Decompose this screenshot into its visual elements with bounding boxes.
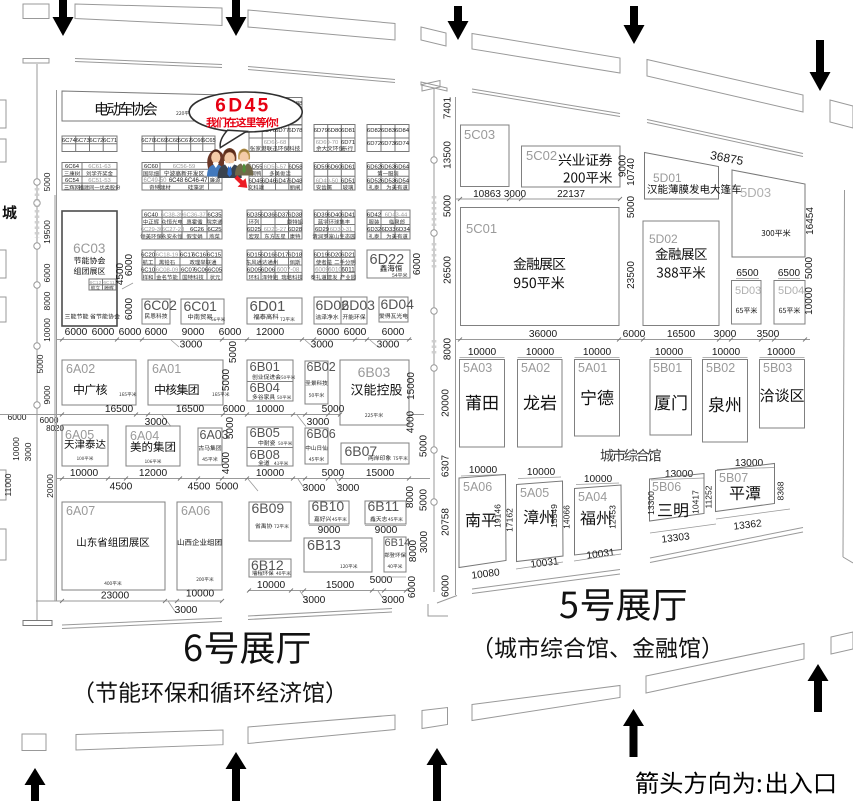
- svg-text:6D74: 6D74: [395, 141, 410, 147]
- svg-text:10000: 10000: [804, 287, 815, 315]
- svg-text:6D34: 6D34: [396, 227, 411, 233]
- svg-text:15000: 15000: [406, 372, 417, 400]
- svg-text:3000: 3000: [180, 340, 203, 351]
- svg-text:11252: 11252: [704, 485, 714, 508]
- svg-text:5000: 5000: [221, 368, 232, 391]
- svg-text:6000: 6000: [344, 327, 367, 338]
- svg-text:6D06: 6D06: [261, 268, 276, 274]
- svg-text:16500: 16500: [105, 404, 134, 415]
- svg-text:6C02: 6C02: [144, 297, 178, 313]
- svg-text:5A01: 5A01: [578, 361, 607, 375]
- svg-text:6A04: 6A04: [130, 429, 159, 443]
- svg-text:6C38-39: 6C38-39: [161, 213, 184, 219]
- svg-text:6C49-50: 6C49-50: [143, 178, 167, 184]
- svg-text:6B06: 6B06: [307, 427, 336, 441]
- svg-text:6D81: 6D81: [341, 128, 355, 134]
- svg-text:10000: 10000: [70, 468, 99, 479]
- svg-text:6D04: 6D04: [381, 296, 415, 312]
- svg-text:6000: 6000: [219, 327, 242, 338]
- svg-text:6D38: 6D38: [288, 213, 303, 219]
- svg-text:5B07: 5B07: [719, 471, 748, 485]
- svg-text:6000: 6000: [124, 253, 135, 276]
- svg-text:10000: 10000: [11, 437, 21, 461]
- svg-text:5A02: 5A02: [521, 361, 550, 375]
- svg-text:6D72: 6D72: [367, 141, 381, 147]
- svg-text:6000: 6000: [317, 327, 340, 338]
- svg-text:8000: 8000: [408, 539, 419, 562]
- svg-text:6000: 6000: [407, 575, 418, 598]
- svg-text:6500: 6500: [736, 268, 759, 279]
- svg-text:6C07: 6C07: [181, 268, 195, 274]
- svg-text:12000: 12000: [139, 468, 168, 479]
- svg-text:6D19: 6D19: [314, 253, 328, 259]
- svg-text:3000: 3000: [175, 605, 198, 616]
- svg-text:6D48: 6D48: [288, 178, 303, 184]
- svg-text:5D03: 5D03: [735, 285, 761, 297]
- svg-text:6D42: 6D42: [367, 213, 381, 219]
- svg-text:6D69-70: 6D69-70: [316, 140, 339, 146]
- svg-text:36875: 36875: [709, 148, 745, 168]
- svg-text:6D64: 6D64: [395, 165, 410, 171]
- svg-text:6D49-50: 6D49-50: [316, 178, 339, 184]
- svg-text:6D41: 6D41: [341, 213, 355, 219]
- svg-text:5D01: 5D01: [653, 171, 682, 185]
- svg-text:6B08: 6B08: [250, 447, 280, 462]
- svg-text:6C64: 6C64: [65, 164, 80, 170]
- svg-text:6D43-44: 6D43-44: [385, 213, 408, 219]
- svg-text:6C65: 6C65: [202, 138, 216, 144]
- svg-text:6D32: 6D32: [367, 227, 381, 233]
- svg-text:10000: 10000: [468, 347, 497, 358]
- svg-text:3000: 3000: [303, 595, 326, 606]
- svg-text:6D62: 6D62: [367, 165, 381, 171]
- svg-text:7401: 7401: [443, 96, 454, 119]
- svg-text:5B01: 5B01: [653, 361, 682, 375]
- svg-text:6B03: 6B03: [358, 364, 391, 380]
- svg-text:6C60: 6C60: [144, 164, 159, 170]
- svg-text:10000: 10000: [256, 404, 285, 415]
- svg-text:19146: 19146: [493, 504, 503, 528]
- svg-text:5D02: 5D02: [649, 232, 678, 246]
- svg-text:6C56-59: 6C56-59: [173, 164, 196, 170]
- svg-text:9000: 9000: [375, 525, 398, 536]
- svg-text:6D15: 6D15: [247, 253, 262, 259]
- svg-text:3000: 3000: [504, 189, 527, 200]
- svg-text:6000: 6000: [441, 574, 452, 597]
- svg-text:6D51: 6D51: [341, 178, 355, 184]
- svg-text:4000: 4000: [221, 451, 232, 474]
- svg-text:6C12: 6C12: [90, 280, 102, 286]
- svg-text:6D17: 6D17: [274, 253, 288, 259]
- svg-text:16454: 16454: [805, 207, 816, 235]
- svg-text:10000: 10000: [527, 467, 556, 478]
- svg-text:6000: 6000: [124, 297, 135, 320]
- svg-text:10863: 10863: [473, 189, 501, 200]
- svg-text:8000: 8000: [405, 485, 416, 508]
- svg-text:20000: 20000: [441, 389, 452, 417]
- svg-text:6C08-09: 6C08-09: [156, 268, 179, 274]
- svg-text:6D83: 6D83: [381, 128, 396, 134]
- svg-text:6C29-30: 6C29-30: [141, 227, 164, 233]
- svg-text:6B12: 6B12: [251, 557, 284, 573]
- svg-text:10080: 10080: [471, 567, 501, 581]
- svg-text:6C35: 6C35: [207, 213, 222, 219]
- svg-text:6D01: 6D01: [250, 298, 286, 315]
- svg-text:12453: 12453: [608, 505, 618, 529]
- svg-text:6C40: 6C40: [144, 213, 159, 219]
- svg-text:6D54: 6D54: [395, 178, 410, 184]
- svg-text:6C06: 6C06: [194, 268, 209, 274]
- svg-text:6D21: 6D21: [341, 253, 355, 259]
- svg-text:6D79: 6D79: [314, 128, 328, 134]
- svg-text:6000: 6000: [623, 329, 646, 340]
- svg-text:6D28: 6D28: [288, 227, 303, 233]
- svg-text:10417: 10417: [691, 490, 701, 514]
- svg-text:9000: 9000: [42, 385, 52, 404]
- svg-text:6D33: 6D33: [381, 227, 396, 233]
- svg-text:6B01: 6B01: [250, 359, 280, 374]
- svg-text:36000: 36000: [529, 329, 558, 340]
- svg-text:6A01: 6A01: [152, 362, 181, 376]
- svg-text:6C25: 6C25: [207, 227, 222, 233]
- svg-text:20758: 20758: [441, 508, 452, 536]
- svg-text:6D82: 6D82: [367, 128, 381, 134]
- svg-text:3000: 3000: [23, 442, 33, 461]
- svg-text:6B13: 6B13: [307, 538, 341, 554]
- svg-text:6C27-28: 6C27-28: [162, 227, 185, 233]
- svg-text:3000: 3000: [714, 329, 737, 340]
- svg-text:14066: 14066: [562, 505, 572, 529]
- svg-text:5A04: 5A04: [578, 490, 607, 504]
- svg-text:8368: 8368: [776, 481, 786, 500]
- svg-text:6000: 6000: [412, 252, 423, 275]
- svg-text:3000: 3000: [377, 340, 400, 351]
- svg-text:6D84: 6D84: [395, 128, 410, 134]
- svg-text:6D05: 6D05: [247, 268, 262, 274]
- svg-text:13300: 13300: [646, 491, 656, 515]
- svg-text:6C71: 6C71: [103, 138, 117, 144]
- svg-text:6A03: 6A03: [200, 428, 229, 442]
- svg-text:6D18: 6D18: [288, 253, 303, 259]
- svg-text:6D37: 6D37: [274, 213, 288, 219]
- svg-text:23000: 23000: [101, 591, 130, 602]
- svg-text:6D73: 6D73: [381, 141, 396, 147]
- svg-text:5000: 5000: [419, 488, 430, 511]
- svg-text:10000: 10000: [469, 465, 498, 476]
- svg-text:6D36: 6D36: [261, 213, 276, 219]
- svg-text:6D60: 6D60: [327, 165, 342, 171]
- svg-text:6D03: 6D03: [342, 297, 376, 313]
- svg-text:10000: 10000: [526, 347, 555, 358]
- svg-text:15000: 15000: [366, 468, 395, 479]
- svg-text:6D29: 6D29: [315, 227, 329, 233]
- svg-text:6000: 6000: [145, 327, 168, 338]
- svg-text:10000: 10000: [257, 580, 286, 591]
- svg-text:6B07: 6B07: [345, 443, 378, 459]
- svg-text:6500: 6500: [778, 268, 801, 279]
- svg-text:5000: 5000: [626, 195, 637, 218]
- svg-text:6D63: 6D63: [381, 165, 396, 171]
- svg-text:6D47: 6D47: [275, 178, 289, 184]
- svg-text:4500: 4500: [110, 482, 133, 493]
- svg-text:6C01: 6C01: [184, 298, 218, 314]
- svg-text:6000: 6000: [223, 404, 246, 415]
- svg-text:10740: 10740: [626, 158, 637, 186]
- svg-text:16500: 16500: [176, 404, 205, 415]
- svg-text:6D40: 6D40: [327, 213, 342, 219]
- svg-text:11000: 11000: [3, 473, 13, 496]
- svg-text:10031: 10031: [586, 547, 616, 561]
- svg-text:5A03: 5A03: [463, 361, 492, 375]
- svg-text:10000: 10000: [767, 347, 796, 358]
- svg-text:6C26: 6C26: [190, 227, 205, 233]
- svg-text:5000: 5000: [216, 482, 239, 493]
- svg-text:23500: 23500: [626, 261, 637, 289]
- svg-text:6B11: 6B11: [368, 498, 400, 514]
- svg-text:6D58: 6D58: [288, 165, 303, 171]
- svg-text:5D03: 5D03: [740, 185, 771, 200]
- svg-text:5000: 5000: [228, 340, 239, 363]
- svg-text:5C01: 5C01: [466, 221, 497, 236]
- svg-text:3000: 3000: [303, 483, 326, 494]
- svg-text:4000: 4000: [406, 410, 417, 433]
- svg-text:6B09: 6B09: [252, 500, 285, 516]
- svg-text:5000: 5000: [419, 434, 430, 457]
- svg-text:9000: 9000: [318, 525, 341, 536]
- svg-text:5000: 5000: [322, 404, 345, 415]
- svg-text:6307: 6307: [441, 454, 452, 477]
- svg-text:6C11: 6C11: [103, 280, 115, 286]
- svg-text:5C03: 5C03: [464, 127, 495, 142]
- svg-text:6C15: 6C15: [207, 253, 222, 259]
- svg-text:6D56-57: 6D56-57: [264, 165, 287, 171]
- svg-text:17162: 17162: [505, 508, 515, 532]
- svg-text:3500: 3500: [757, 329, 780, 340]
- svg-text:6D25: 6D25: [247, 227, 262, 233]
- svg-text:6A06: 6A06: [181, 504, 210, 518]
- svg-text:6C74: 6C74: [62, 138, 77, 144]
- svg-text:6000: 6000: [65, 327, 88, 338]
- svg-text:10000: 10000: [712, 347, 741, 358]
- svg-text:5000: 5000: [443, 194, 454, 217]
- svg-text:6C20: 6C20: [141, 253, 156, 259]
- svg-text:6C73: 6C73: [76, 138, 91, 144]
- svg-text:6D53: 6D53: [381, 178, 396, 184]
- svg-text:10000: 10000: [42, 318, 52, 342]
- svg-text:6D71: 6D71: [341, 140, 355, 146]
- svg-text:6C36-37: 6C36-37: [183, 213, 206, 219]
- svg-text:6C03: 6C03: [73, 241, 105, 256]
- svg-text:6C61-63: 6C61-63: [88, 164, 111, 170]
- svg-text:13303: 13303: [661, 531, 691, 545]
- svg-text:22137: 22137: [557, 189, 585, 200]
- svg-text:6B02: 6B02: [307, 360, 336, 374]
- svg-text:6D52: 6D52: [367, 178, 381, 184]
- svg-text:5000: 5000: [804, 256, 815, 279]
- svg-text:6B05: 6B05: [250, 425, 280, 440]
- svg-text:6B04: 6B04: [250, 380, 280, 395]
- svg-text:6D39: 6D39: [314, 213, 328, 219]
- svg-text:16500: 16500: [667, 329, 696, 340]
- svg-text:5A06: 5A06: [463, 480, 492, 494]
- svg-text:6C54: 6C54: [65, 178, 80, 184]
- svg-text:8000: 8000: [443, 337, 454, 360]
- svg-text:3000: 3000: [311, 340, 334, 351]
- svg-text:9000: 9000: [182, 327, 205, 338]
- svg-text:6D78: 6D78: [288, 128, 303, 134]
- svg-text:5D04: 5D04: [778, 285, 804, 297]
- svg-text:6C18-19: 6C18-19: [156, 253, 179, 259]
- svg-text:6000: 6000: [119, 327, 142, 338]
- svg-text:12000: 12000: [256, 327, 285, 338]
- svg-text:6000: 6000: [92, 327, 115, 338]
- svg-text:5000: 5000: [35, 354, 45, 373]
- svg-text:10000: 10000: [583, 347, 612, 358]
- svg-text:6C48: 6C48: [169, 178, 184, 184]
- svg-text:3000: 3000: [419, 530, 430, 553]
- svg-text:10000: 10000: [186, 589, 215, 600]
- svg-text:6D65-68: 6D65-68: [264, 140, 287, 146]
- svg-text:5B02: 5B02: [706, 361, 735, 375]
- svg-text:13362: 13362: [733, 518, 763, 532]
- svg-text:6D80: 6D80: [327, 128, 342, 134]
- svg-text:5A05: 5A05: [520, 486, 549, 500]
- svg-text:6D16: 6D16: [261, 253, 276, 259]
- svg-text:5B03: 5B03: [763, 361, 792, 375]
- svg-text:6D35: 6D35: [247, 213, 262, 219]
- svg-text:6C46-47: 6C46-47: [184, 178, 208, 184]
- svg-text:6C16: 6C16: [192, 253, 207, 259]
- svg-text:6D45: 6D45: [215, 96, 270, 117]
- svg-text:6C72: 6C72: [89, 138, 103, 144]
- svg-text:6011: 6011: [341, 267, 355, 274]
- svg-text:6010: 6010: [328, 267, 342, 274]
- svg-text:6007-08: 6007-08: [277, 267, 300, 274]
- svg-text:6D61: 6D61: [341, 165, 355, 171]
- svg-text:6000: 6000: [42, 263, 52, 282]
- svg-text:5000: 5000: [42, 172, 52, 191]
- svg-text:15000: 15000: [326, 580, 355, 591]
- svg-text:26500: 26500: [443, 256, 454, 284]
- svg-text:20000: 20000: [45, 474, 55, 498]
- svg-text:6A07: 6A07: [66, 504, 95, 518]
- svg-text:6A02: 6A02: [66, 362, 95, 376]
- svg-text:13500: 13500: [443, 141, 454, 169]
- svg-text:10000: 10000: [655, 347, 684, 358]
- svg-text:6000: 6000: [382, 327, 405, 338]
- svg-text:6D20: 6D20: [327, 253, 342, 259]
- svg-text:6B14: 6B14: [385, 537, 411, 549]
- svg-text:5000: 5000: [322, 468, 345, 479]
- svg-text:6D59: 6D59: [314, 165, 328, 171]
- svg-text:6C05: 6C05: [208, 268, 223, 274]
- svg-text:8000: 8000: [42, 291, 52, 310]
- svg-text:6D26-27: 6D26-27: [264, 227, 287, 233]
- svg-text:5B06: 5B06: [652, 480, 681, 494]
- svg-text:6000: 6000: [8, 412, 27, 422]
- svg-text:15549: 15549: [549, 504, 559, 528]
- svg-text:3000: 3000: [382, 595, 405, 606]
- svg-text:6D30-31: 6D30-31: [330, 227, 353, 233]
- svg-text:4500: 4500: [188, 482, 211, 493]
- svg-text:6C51-53: 6C51-53: [88, 178, 111, 184]
- svg-text:19500: 19500: [42, 220, 52, 244]
- svg-text:6C10: 6C10: [141, 268, 156, 274]
- svg-text:5C02: 5C02: [526, 148, 557, 163]
- svg-text:6B10: 6B10: [312, 498, 345, 514]
- svg-text:10000: 10000: [256, 468, 285, 479]
